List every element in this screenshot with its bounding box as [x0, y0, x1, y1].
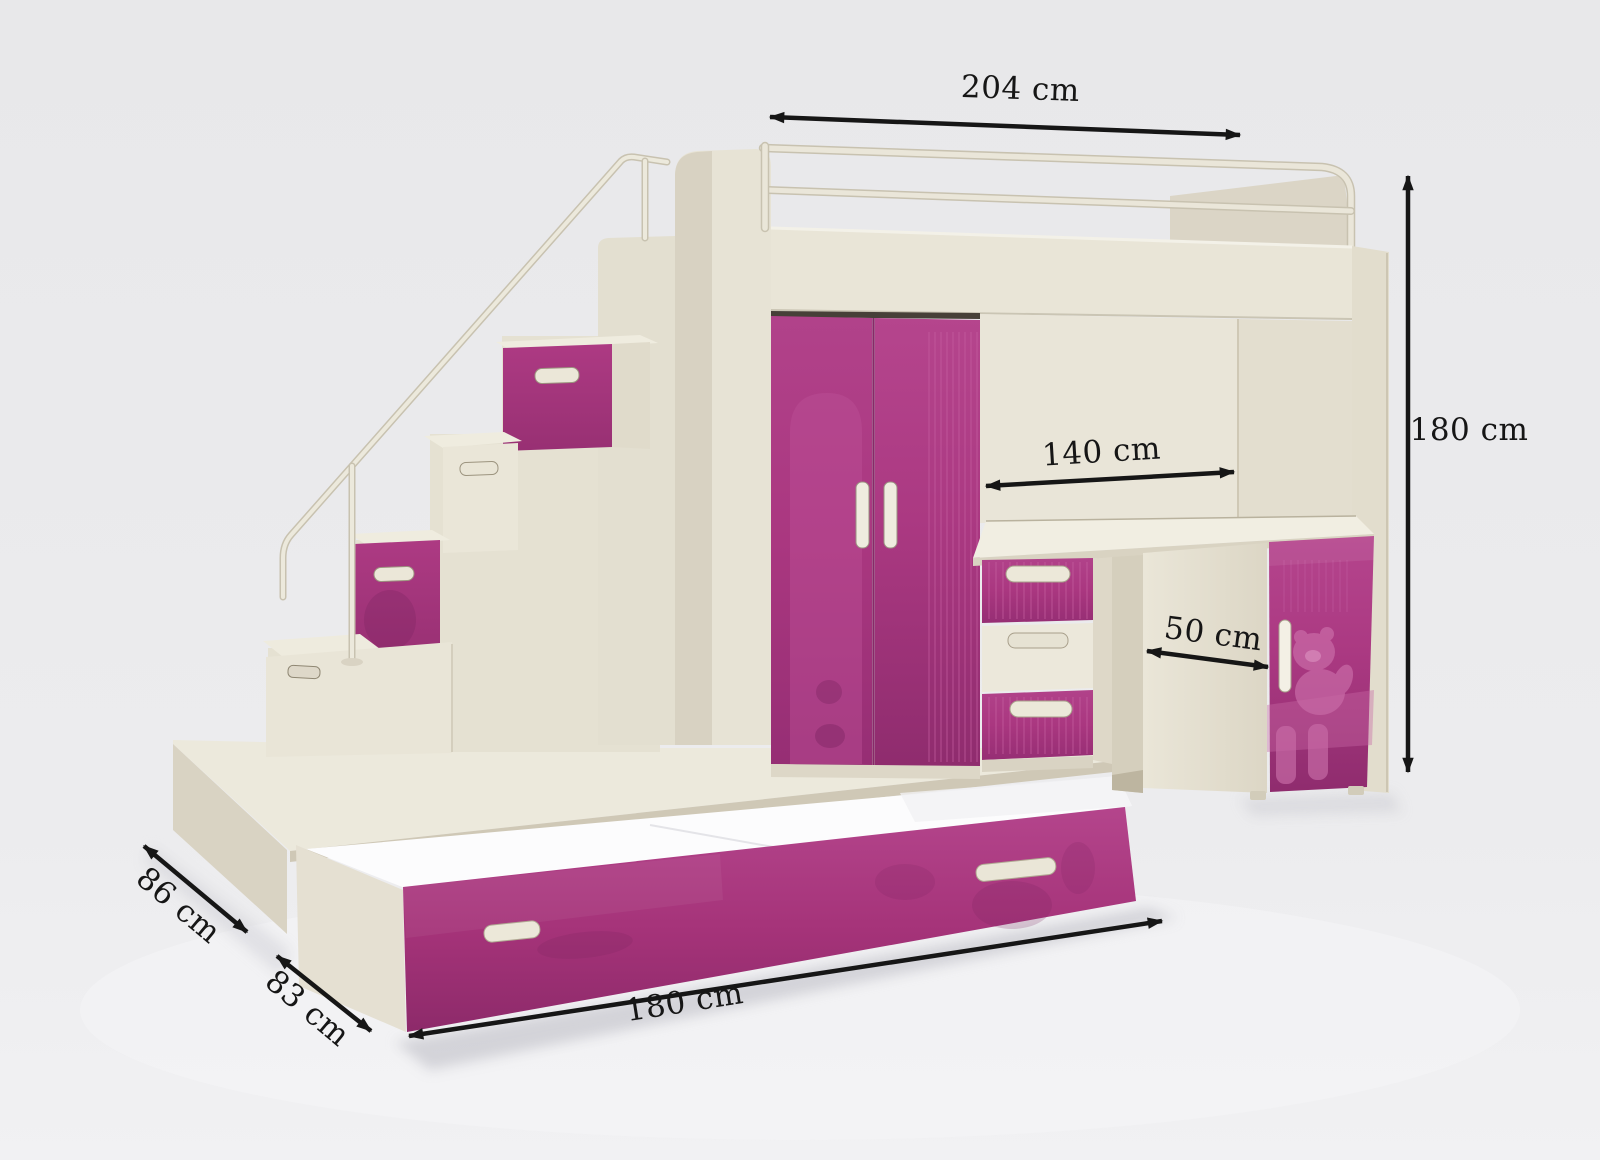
- door-left-arch-reflection: [790, 393, 862, 764]
- bed-end-panel-shade: [675, 151, 712, 745]
- drawer-handle-1: [1006, 566, 1070, 582]
- step3-drawer-cream: [443, 443, 518, 553]
- dim-desk-width-label: 140 cm: [1041, 430, 1162, 473]
- door-left-reflection-dot2: [815, 724, 845, 748]
- drawer-stack-side: [1093, 557, 1112, 764]
- step4-handle: [535, 367, 579, 384]
- step4-drawer-pink: [503, 344, 612, 451]
- handrail-post-foot: [341, 658, 363, 666]
- step2-reflection: [364, 590, 416, 650]
- desk-knee-space: [1112, 555, 1143, 793]
- wardrobe-base: [771, 764, 980, 779]
- stair-upper-wall: [598, 236, 675, 745]
- wardrobe-handle-right: [884, 482, 897, 548]
- dim-overall-height-label: 180 cm: [1410, 412, 1529, 448]
- loft-bed-illustration: 204 cm 180 cm 140 cm 50 cm 86 cm 83 cm 1…: [0, 0, 1600, 1160]
- dim-top-width-label: 204 cm: [960, 69, 1080, 109]
- step4-side: [612, 342, 650, 449]
- wardrobe-handle-left: [856, 482, 869, 548]
- teddy-muzzle: [1305, 650, 1321, 662]
- desk-drawer-stack: [982, 557, 1112, 772]
- cabinet-foot-right: [1348, 786, 1364, 795]
- cabinet-left-face: [1143, 543, 1267, 793]
- drawer-handle-3: [1010, 701, 1072, 717]
- step1-handle: [288, 665, 321, 679]
- desk-area: [973, 314, 1374, 800]
- door-left-reflection-dot1: [816, 680, 842, 704]
- cabinet-foot-left: [1250, 791, 1266, 800]
- wardrobe: [771, 311, 980, 779]
- drawer-handle-2: [1008, 633, 1068, 648]
- desk-back-wall: [980, 314, 1238, 523]
- desk-inner-right-wall: [1238, 319, 1352, 518]
- cabinet-handle: [1279, 620, 1291, 692]
- step2-handle: [374, 566, 414, 581]
- furniture-dimension-diagram: 204 cm 180 cm 140 cm 50 cm 86 cm 83 cm 1…: [0, 0, 1600, 1160]
- step3-handle: [460, 461, 498, 475]
